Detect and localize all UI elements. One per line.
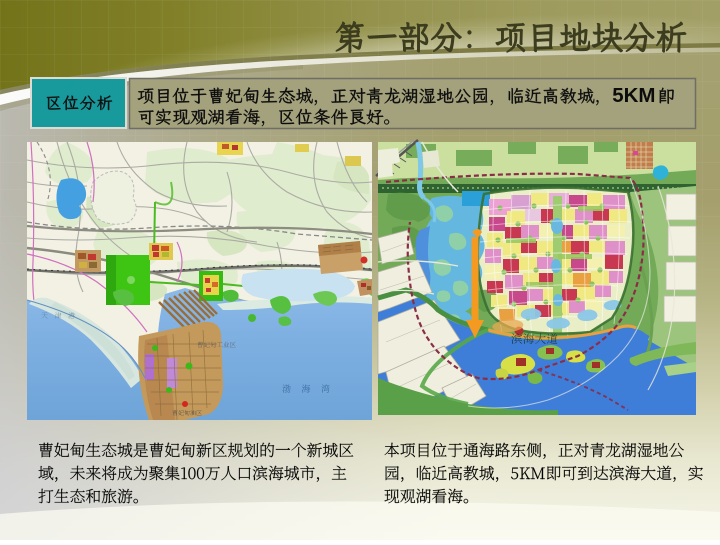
svg-text:5KM: 5KM (612, 84, 655, 107)
